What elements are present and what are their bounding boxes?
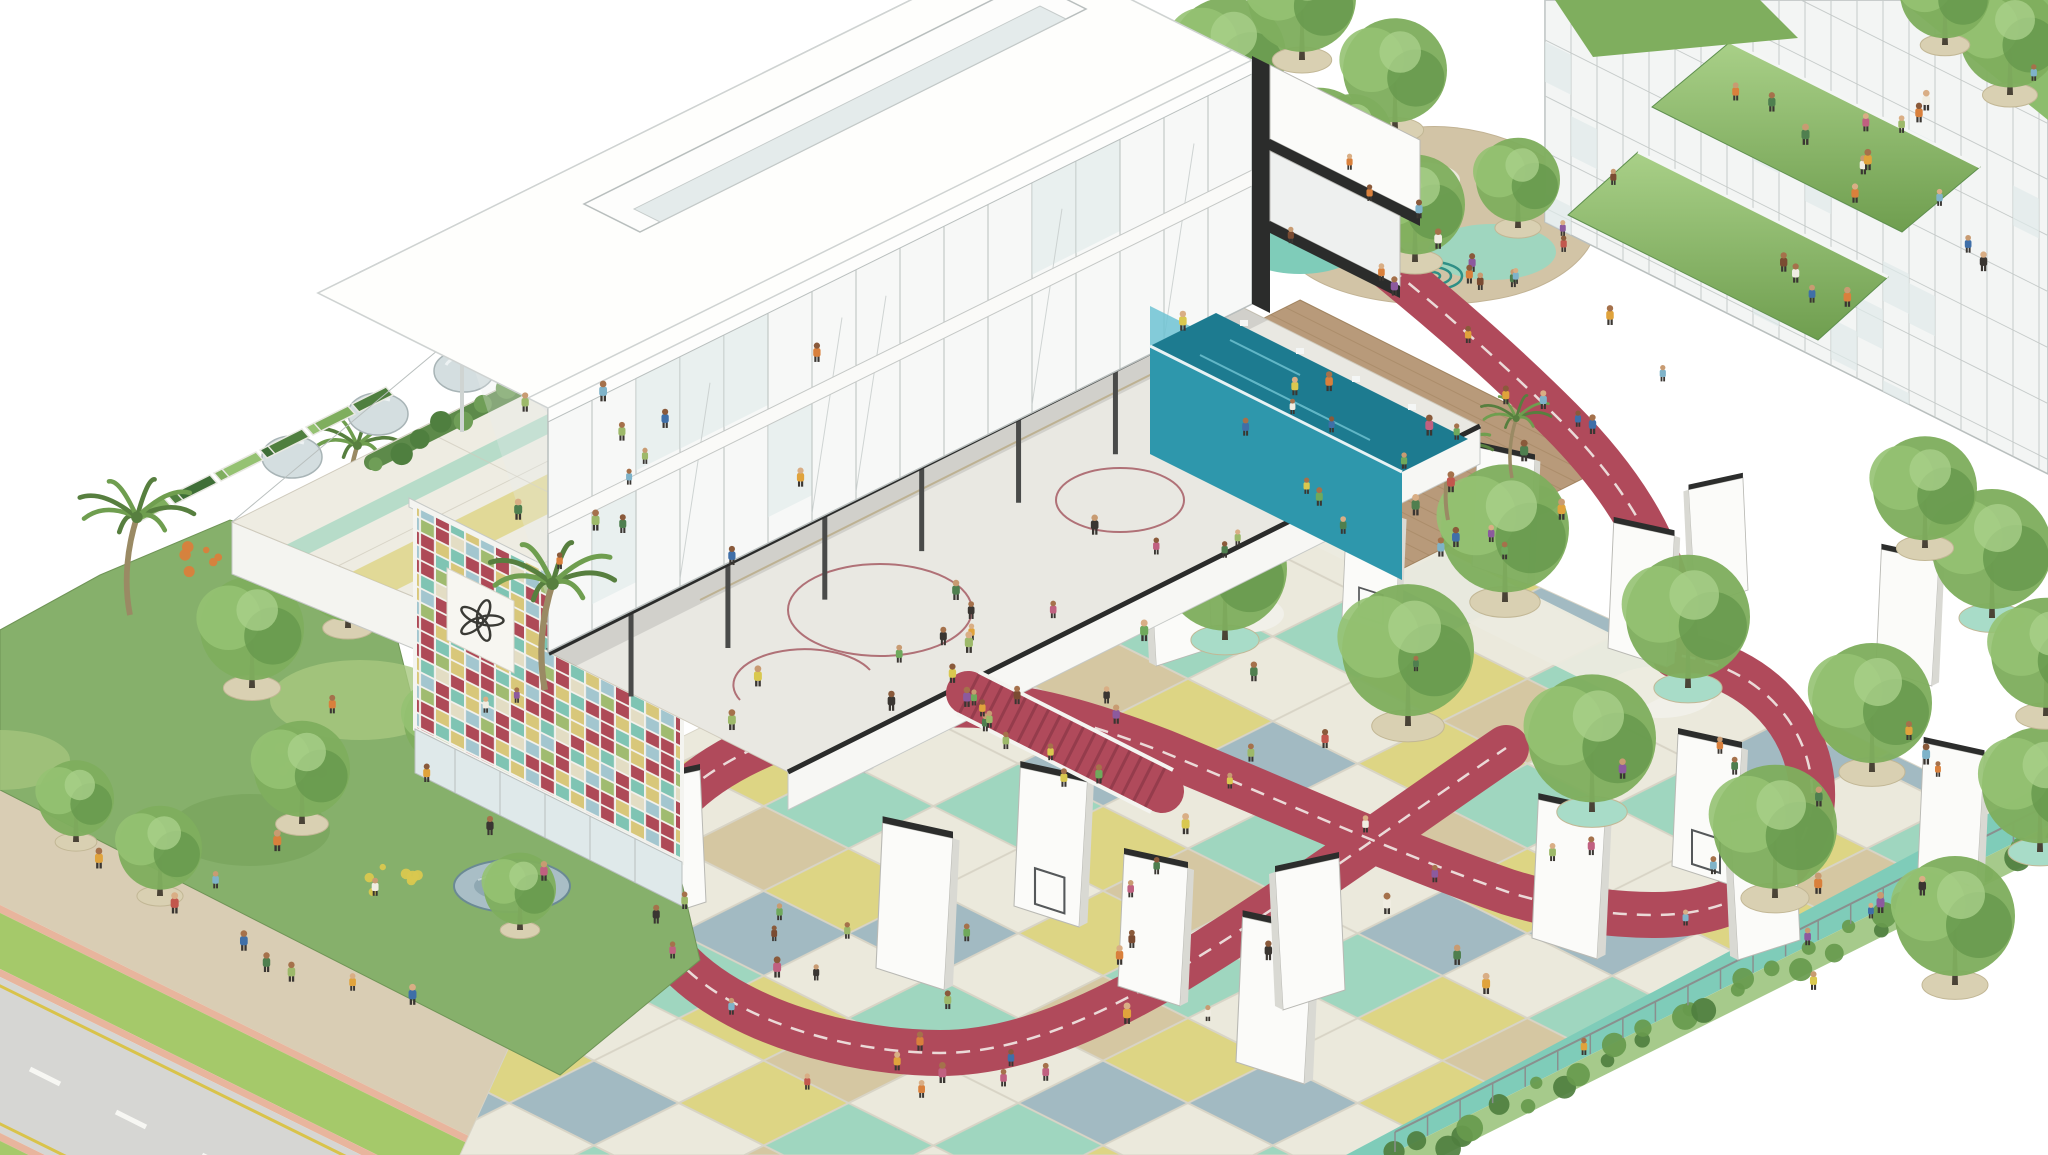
figure-body xyxy=(556,557,562,564)
figure-body xyxy=(1710,861,1717,869)
figure-body xyxy=(968,606,975,614)
figure-leg xyxy=(1868,164,1870,170)
figure-leg xyxy=(1869,914,1871,919)
figure-head xyxy=(1416,199,1422,205)
figure-leg xyxy=(1564,247,1566,252)
figure-body xyxy=(940,632,947,640)
figure-leg xyxy=(1966,247,1968,252)
figure-leg xyxy=(1927,104,1929,110)
figure-leg xyxy=(774,971,776,977)
figure-body xyxy=(1103,691,1109,699)
figure-leg xyxy=(1107,698,1109,703)
figure-leg xyxy=(1124,1018,1126,1024)
figure-head xyxy=(1182,813,1189,820)
figure-leg xyxy=(1505,554,1507,559)
tree-canopy xyxy=(1756,780,1806,830)
figure-leg xyxy=(1413,509,1415,515)
figure-leg xyxy=(1292,390,1294,396)
figure-head xyxy=(1329,416,1334,421)
bush xyxy=(1407,1131,1426,1150)
figure-leg xyxy=(1916,116,1918,122)
figure-leg xyxy=(969,646,971,652)
figure-head xyxy=(1937,189,1942,194)
figure-leg xyxy=(1157,549,1159,554)
figure-leg xyxy=(1661,376,1663,381)
figure-leg xyxy=(1117,959,1119,965)
figure-body xyxy=(642,452,648,459)
figure-leg xyxy=(1733,95,1735,100)
figure-head xyxy=(1919,876,1925,882)
figure-leg xyxy=(373,890,375,895)
figure-leg xyxy=(1871,914,1873,919)
figure-body xyxy=(483,701,489,708)
figure-body xyxy=(1391,282,1398,291)
figure-leg xyxy=(1230,784,1232,789)
figure-body xyxy=(979,704,985,712)
tree-canopy xyxy=(1909,449,1951,491)
figure-body xyxy=(486,821,493,830)
figure-head xyxy=(263,952,269,958)
figure-body xyxy=(813,348,820,357)
tree-canopy xyxy=(1854,658,1902,706)
figure-body xyxy=(1291,382,1298,390)
figure-leg xyxy=(1589,849,1591,855)
figure-head xyxy=(483,696,488,701)
figure-leg xyxy=(944,640,946,646)
figure-leg xyxy=(1578,422,1580,427)
figure-leg xyxy=(1064,781,1066,787)
figure-leg xyxy=(1453,541,1455,547)
figure-head xyxy=(1540,390,1546,396)
figure-head xyxy=(662,409,668,415)
figure-head xyxy=(896,645,902,651)
figure-head xyxy=(1589,414,1595,420)
figure-body xyxy=(1864,155,1872,164)
figure-leg xyxy=(1432,877,1434,882)
figure-head xyxy=(797,467,803,473)
figure-leg xyxy=(1920,890,1922,896)
figure-leg xyxy=(801,481,803,487)
figure-head xyxy=(241,930,248,937)
figure-head xyxy=(350,973,356,979)
figure-body xyxy=(1060,774,1067,782)
figure-leg xyxy=(1416,667,1418,672)
figure-leg xyxy=(980,711,982,716)
figure-leg xyxy=(1332,428,1334,433)
figure-head xyxy=(888,691,894,697)
figure-leg xyxy=(593,524,595,530)
figure-head xyxy=(213,871,219,877)
figure-leg xyxy=(1222,553,1224,558)
figure-head xyxy=(968,601,974,607)
figure-leg xyxy=(1347,165,1349,170)
figure-head xyxy=(1465,326,1471,332)
figure-body xyxy=(1815,792,1823,801)
figure-head xyxy=(541,861,547,867)
figure-leg xyxy=(889,705,891,711)
figure-head xyxy=(1003,732,1009,738)
figure-leg xyxy=(777,915,779,920)
figure-leg xyxy=(1438,551,1440,557)
figure-leg xyxy=(948,1003,950,1009)
figure-leg xyxy=(845,934,847,939)
flower xyxy=(413,870,423,880)
figure-leg xyxy=(1487,988,1489,994)
figure-leg xyxy=(1061,781,1063,787)
figure-leg xyxy=(780,915,782,920)
figure-leg xyxy=(1104,698,1106,703)
figure-body xyxy=(1140,626,1148,636)
figure-leg xyxy=(1559,513,1561,519)
figure-body xyxy=(423,769,430,777)
figure-leg xyxy=(1811,984,1813,990)
figure-leg xyxy=(330,708,332,714)
figure-body xyxy=(1452,533,1460,542)
figure-head xyxy=(953,580,960,587)
figure-leg xyxy=(1145,635,1147,641)
figure-leg xyxy=(172,907,174,913)
tree-canopy xyxy=(1505,148,1539,182)
figure-head xyxy=(845,922,850,927)
figure-head xyxy=(1560,220,1565,225)
figure-body xyxy=(1288,232,1294,239)
figure-leg xyxy=(1046,1075,1048,1080)
figure-leg xyxy=(1439,243,1441,249)
figure-head xyxy=(1781,252,1787,258)
figure-head xyxy=(1923,90,1930,97)
figure-body xyxy=(1804,933,1811,941)
figure-head xyxy=(592,510,599,517)
figure-leg xyxy=(1238,541,1240,546)
figure-head xyxy=(919,1080,925,1086)
figure-head xyxy=(1488,525,1494,531)
figure-head xyxy=(1235,529,1240,534)
hedge-bush xyxy=(410,429,430,449)
figure-body xyxy=(1378,268,1385,276)
figure-leg xyxy=(213,883,215,888)
figure-head xyxy=(1454,423,1459,428)
figure-head xyxy=(1810,971,1816,977)
flower xyxy=(184,566,195,577)
figure-leg xyxy=(1382,276,1384,281)
figure-body xyxy=(1014,691,1021,699)
bush xyxy=(1489,1094,1510,1115)
figure-leg xyxy=(1251,675,1253,681)
figure-leg xyxy=(1940,201,1942,206)
figure-body xyxy=(1362,820,1369,828)
figure-head xyxy=(522,392,528,398)
figure-body xyxy=(1250,667,1257,676)
figure-body xyxy=(1768,98,1775,107)
figure-body xyxy=(1606,311,1613,320)
figure-leg xyxy=(969,614,971,619)
figure-leg xyxy=(1506,399,1508,405)
figure-head xyxy=(1581,1038,1587,1044)
figure-body xyxy=(728,551,735,560)
figure-head xyxy=(729,998,734,1003)
figure-body xyxy=(963,929,970,937)
figure-leg xyxy=(1473,266,1475,272)
flower xyxy=(209,558,217,566)
figure-leg xyxy=(1295,390,1297,396)
figure-leg xyxy=(1478,285,1480,290)
figure-leg xyxy=(1307,489,1309,494)
figure-leg xyxy=(1861,169,1863,175)
figure-body xyxy=(804,1078,810,1085)
figure-head xyxy=(1180,311,1186,317)
figure-leg xyxy=(1981,265,1983,271)
figure-leg xyxy=(966,646,968,652)
figure-leg xyxy=(1099,778,1101,784)
figure-head xyxy=(964,687,971,694)
figure-leg xyxy=(1881,907,1883,913)
figure-head xyxy=(1124,1003,1131,1010)
figure-leg xyxy=(895,1065,897,1071)
figure-leg xyxy=(560,564,562,569)
figure-leg xyxy=(917,1045,919,1051)
figure-leg xyxy=(953,594,955,600)
figure-leg xyxy=(1920,116,1922,122)
figure-body xyxy=(1116,951,1123,960)
figure-leg xyxy=(1441,551,1443,557)
tree-canopy xyxy=(1388,601,1441,654)
figure-head xyxy=(1316,487,1322,493)
figure-leg xyxy=(972,614,974,619)
figure-leg xyxy=(515,698,517,703)
figure-body xyxy=(1325,377,1332,386)
figure-leg xyxy=(1553,856,1555,861)
figure-leg xyxy=(622,435,624,441)
figure-head xyxy=(274,830,281,837)
figure-leg xyxy=(1781,266,1783,272)
figure-leg xyxy=(1183,325,1185,331)
figure-leg xyxy=(808,1085,810,1090)
figure-body xyxy=(728,715,736,724)
figure-head xyxy=(1710,856,1716,862)
figure-leg xyxy=(919,1092,921,1097)
figure-leg xyxy=(1718,749,1720,754)
figure-head xyxy=(1104,686,1110,692)
figure-leg xyxy=(1937,201,1939,206)
figure-leg xyxy=(1114,718,1116,724)
figure-leg xyxy=(1141,635,1143,641)
figure-leg xyxy=(1969,247,1971,252)
figure-body xyxy=(916,1037,923,1046)
figure-body xyxy=(1844,293,1852,302)
figure-leg xyxy=(1511,282,1513,287)
figure-head xyxy=(1503,386,1509,392)
figure-head xyxy=(1014,686,1020,692)
figure-leg xyxy=(1514,279,1516,284)
figure-body xyxy=(1153,542,1159,550)
palm-crown xyxy=(546,578,559,591)
bush xyxy=(1521,1099,1535,1113)
figure-head xyxy=(1432,865,1438,871)
tree-canopy xyxy=(1486,480,1537,531)
figure-leg xyxy=(1516,279,1518,284)
figure-leg xyxy=(1011,1061,1013,1066)
figure-head xyxy=(965,631,972,638)
figure-body xyxy=(1610,173,1616,180)
figure-leg xyxy=(1456,541,1458,547)
figure-leg xyxy=(1878,907,1880,913)
figure-head xyxy=(945,990,951,996)
figure-leg xyxy=(775,936,777,941)
figure-head xyxy=(96,848,103,855)
figure-leg xyxy=(682,904,684,909)
figure-leg xyxy=(1720,749,1722,754)
figure-head xyxy=(1683,910,1688,915)
figure-leg xyxy=(1392,290,1394,296)
figure-head xyxy=(1129,930,1135,936)
figure-leg xyxy=(1924,104,1926,110)
figure-body xyxy=(1575,415,1581,422)
figure-head xyxy=(1816,787,1822,793)
figure-leg xyxy=(1544,403,1546,409)
freestanding-panel xyxy=(1269,852,1345,1010)
panel-face xyxy=(876,823,953,990)
figure-head xyxy=(729,709,736,716)
figure-leg xyxy=(663,422,665,428)
figure-head xyxy=(1304,477,1309,482)
figure-leg xyxy=(805,1085,807,1090)
figure-leg xyxy=(517,698,519,703)
figure-leg xyxy=(1018,699,1020,705)
figure-leg xyxy=(1015,699,1017,705)
figure-head xyxy=(971,689,976,694)
panel-face xyxy=(1118,854,1188,1006)
figure-leg xyxy=(2032,76,2034,81)
figure-leg xyxy=(2034,76,2036,81)
figure-head xyxy=(805,1073,810,1078)
figure-head xyxy=(1401,452,1406,457)
figure-leg xyxy=(333,708,335,714)
figure-head xyxy=(1466,265,1472,271)
figure-leg xyxy=(1469,338,1471,343)
figure-head xyxy=(653,905,659,911)
figure-body xyxy=(1589,420,1596,429)
figure-head xyxy=(1717,737,1723,743)
figure-leg xyxy=(729,559,731,565)
figure-body xyxy=(1915,108,1922,117)
figure-body xyxy=(1003,737,1010,745)
figure-body xyxy=(1814,879,1822,889)
figure-leg xyxy=(1096,778,1098,784)
figure-leg xyxy=(1848,301,1850,307)
figure-leg xyxy=(798,481,800,487)
figure-leg xyxy=(1186,828,1188,834)
figure-leg xyxy=(604,395,606,401)
figure-leg xyxy=(1154,869,1156,874)
figure-body xyxy=(653,910,660,918)
figure-head xyxy=(1288,227,1293,232)
figure-head xyxy=(1864,149,1871,156)
figure-leg xyxy=(1466,338,1468,343)
figure-leg xyxy=(523,406,525,412)
figure-leg xyxy=(1561,247,1563,252)
figure-leg xyxy=(1714,869,1716,874)
figure-leg xyxy=(1420,213,1422,219)
figure-head xyxy=(620,514,626,520)
figure-body xyxy=(1502,391,1509,399)
figure-leg xyxy=(175,907,177,913)
figure-head xyxy=(729,546,735,552)
tree-canopy xyxy=(1995,0,2035,40)
axonometric-scene xyxy=(0,0,2048,1155)
figure-leg xyxy=(755,680,757,686)
figure-leg xyxy=(972,701,974,706)
figure-head xyxy=(1906,721,1912,727)
figure-body xyxy=(1980,257,1987,266)
figure-leg xyxy=(541,875,543,881)
figure-leg xyxy=(817,356,819,362)
figure-leg xyxy=(685,904,687,909)
figure-leg xyxy=(1813,297,1815,302)
figure-leg xyxy=(241,945,243,951)
figure-leg xyxy=(1769,106,1771,112)
figure-head xyxy=(288,962,294,968)
figure-leg xyxy=(1732,769,1734,774)
figure-leg xyxy=(1863,126,1865,131)
figure-body xyxy=(1513,273,1519,280)
figure-body xyxy=(1868,907,1874,914)
tree-canopy xyxy=(1379,31,1421,73)
figure-leg xyxy=(657,918,659,924)
figure-body xyxy=(1127,885,1134,893)
figure-body xyxy=(844,927,850,934)
figure-head xyxy=(1326,371,1332,377)
figure-head xyxy=(1001,1069,1007,1075)
figure-leg xyxy=(1451,486,1453,492)
figure-leg xyxy=(1936,772,1938,777)
figure-head xyxy=(1588,836,1594,842)
figure-head xyxy=(487,816,493,822)
figure-leg xyxy=(1984,265,1986,271)
figure-body xyxy=(1809,290,1816,298)
bush xyxy=(1567,1063,1590,1086)
figure-body xyxy=(1447,477,1455,486)
figure-body xyxy=(1561,240,1567,247)
figure-body xyxy=(2031,69,2037,76)
figure-leg xyxy=(1132,943,1134,948)
figure-leg xyxy=(1054,613,1056,618)
panel-face xyxy=(1275,858,1345,1010)
figure-head xyxy=(1513,268,1518,273)
figure-leg xyxy=(990,723,992,728)
figure-body xyxy=(896,650,903,658)
figure-body xyxy=(1304,482,1310,489)
figure-leg xyxy=(1128,892,1130,897)
figure-leg xyxy=(1582,1050,1584,1055)
figure-leg xyxy=(1051,755,1053,760)
figure-leg xyxy=(1402,464,1404,469)
figure-body xyxy=(1128,935,1135,943)
figure-head xyxy=(1607,305,1613,311)
figure-body xyxy=(1453,950,1461,959)
figure-body xyxy=(1619,764,1627,773)
figure-leg xyxy=(1289,238,1291,243)
figure-body xyxy=(1179,316,1187,325)
figure-leg xyxy=(729,724,731,730)
figure-leg xyxy=(1129,943,1131,948)
figure-leg xyxy=(1254,675,1256,681)
figure-leg xyxy=(1492,537,1494,542)
figure-leg xyxy=(950,677,952,683)
figure-leg xyxy=(1290,409,1292,414)
bush xyxy=(1530,1077,1542,1089)
figure-head xyxy=(1367,184,1372,189)
figure-leg xyxy=(900,657,902,662)
